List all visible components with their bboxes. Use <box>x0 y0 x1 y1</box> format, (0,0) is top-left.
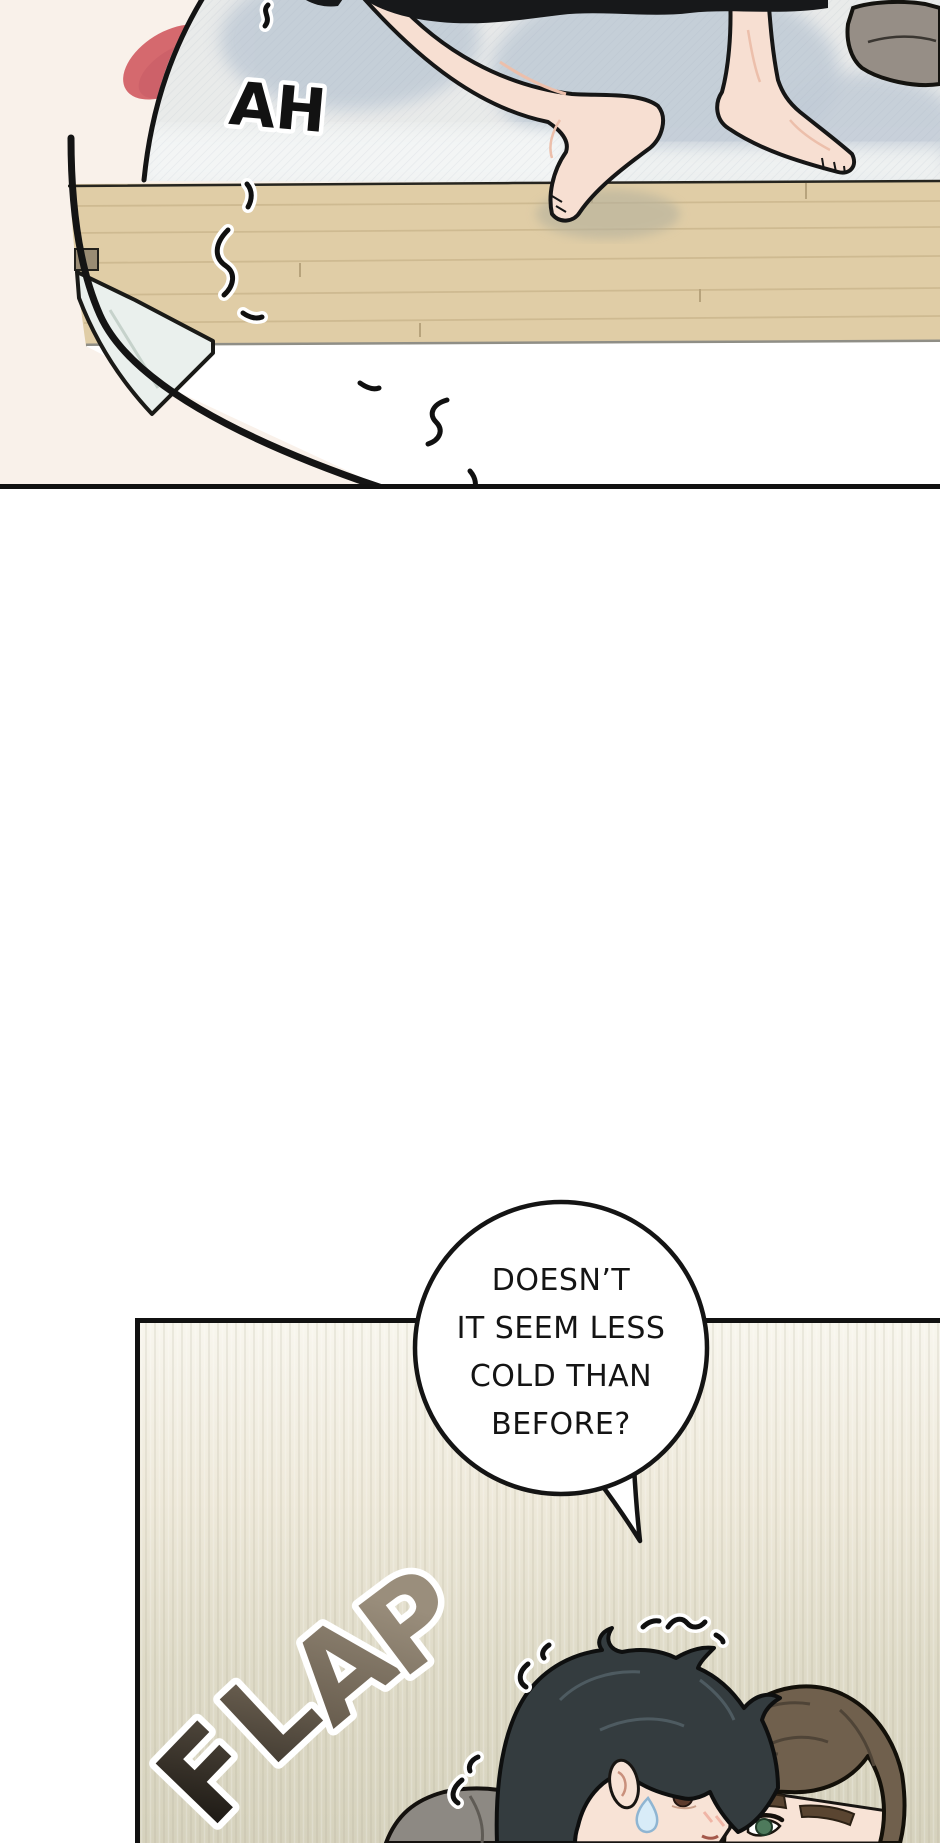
bubble-text-line-4: BEFORE? <box>491 1407 631 1442</box>
panel-room-scene: F L A P <box>0 1180 940 1843</box>
bubble-body <box>415 1202 707 1494</box>
panel-divider-line <box>0 484 940 489</box>
bubble-text-line-2: IT SEEM LESS <box>457 1311 666 1346</box>
bubble-text-line-1: DOESN’T <box>492 1263 631 1298</box>
bubble-text-line-3: COLD THAN <box>470 1359 652 1394</box>
panel-bed-scene: AH <box>0 0 940 489</box>
wood-floor <box>68 181 940 346</box>
comic-page: AH <box>0 0 940 1843</box>
ah-sfx-text: AH <box>227 69 329 147</box>
